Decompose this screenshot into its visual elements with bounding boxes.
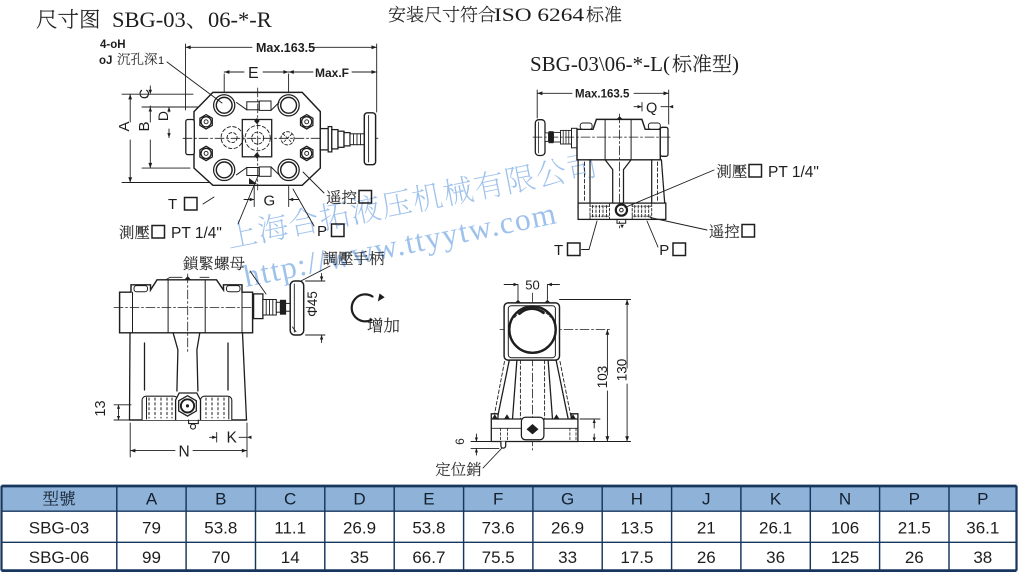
svg-text:50: 50 bbox=[525, 278, 539, 293]
svg-text:75.5: 75.5 bbox=[482, 548, 515, 567]
svg-text:SBG-03: SBG-03 bbox=[112, 7, 186, 32]
svg-text:G: G bbox=[561, 490, 574, 509]
svg-text:T: T bbox=[168, 196, 177, 213]
svg-text:14: 14 bbox=[281, 548, 300, 567]
svg-text:130: 130 bbox=[615, 359, 630, 382]
svg-text:N: N bbox=[179, 444, 190, 461]
svg-text:P: P bbox=[317, 223, 327, 240]
svg-text:D: D bbox=[155, 111, 171, 121]
svg-text:): ) bbox=[732, 52, 739, 76]
svg-text:125: 125 bbox=[831, 548, 859, 567]
svg-text:17.5: 17.5 bbox=[620, 548, 653, 567]
svg-text:P: P bbox=[977, 490, 988, 509]
svg-text:Max.F: Max.F bbox=[315, 66, 349, 80]
svg-text:70: 70 bbox=[211, 548, 230, 567]
svg-text:oJ: oJ bbox=[99, 55, 112, 67]
svg-text:E: E bbox=[423, 490, 434, 509]
svg-text:A: A bbox=[116, 121, 133, 131]
svg-text:G: G bbox=[264, 193, 276, 210]
svg-text:B: B bbox=[136, 121, 153, 131]
svg-text:Q: Q bbox=[646, 101, 657, 117]
svg-text:13.5: 13.5 bbox=[620, 519, 653, 538]
svg-text:26: 26 bbox=[905, 548, 924, 567]
svg-text:SBG-06: SBG-06 bbox=[29, 548, 89, 567]
svg-text:Max.163.5: Max.163.5 bbox=[256, 41, 315, 55]
svg-text:P: P bbox=[659, 242, 669, 259]
svg-text:http://www.ttyytw.com: http://www.ttyytw.com bbox=[240, 195, 560, 293]
svg-text:B: B bbox=[215, 490, 226, 509]
svg-text:PT 1/4": PT 1/4" bbox=[768, 164, 819, 181]
svg-text:K: K bbox=[227, 430, 238, 447]
svg-text:SBG-03\06-*-L(: SBG-03\06-*-L( bbox=[530, 52, 670, 76]
svg-text:26: 26 bbox=[697, 548, 716, 567]
svg-text:SBG-03: SBG-03 bbox=[29, 519, 89, 538]
svg-text:26.9: 26.9 bbox=[343, 519, 376, 538]
svg-text:106: 106 bbox=[831, 519, 859, 538]
svg-text:73.6: 73.6 bbox=[482, 519, 515, 538]
svg-text:E: E bbox=[248, 65, 259, 82]
svg-text:53.8: 53.8 bbox=[412, 519, 445, 538]
svg-text:1: 1 bbox=[158, 55, 164, 67]
svg-text:ISO 6264: ISO 6264 bbox=[494, 6, 584, 26]
svg-text:D: D bbox=[353, 490, 365, 509]
svg-text:N: N bbox=[839, 490, 851, 509]
svg-text:4-oH: 4-oH bbox=[100, 39, 126, 51]
svg-text:33: 33 bbox=[558, 548, 577, 567]
svg-text:PT 1/4": PT 1/4" bbox=[171, 225, 222, 242]
svg-text:C: C bbox=[284, 490, 296, 509]
svg-text:26.9: 26.9 bbox=[551, 519, 584, 538]
svg-text:79: 79 bbox=[142, 519, 161, 538]
svg-text:Φ45: Φ45 bbox=[305, 291, 320, 317]
svg-text:26.1: 26.1 bbox=[759, 519, 792, 538]
svg-text:36: 36 bbox=[766, 548, 785, 567]
svg-text:T: T bbox=[554, 242, 563, 259]
svg-text:36.1: 36.1 bbox=[966, 519, 999, 538]
svg-text:35: 35 bbox=[350, 548, 369, 567]
svg-text:F: F bbox=[493, 490, 503, 509]
svg-text:C: C bbox=[136, 89, 152, 99]
svg-text:K: K bbox=[770, 490, 782, 509]
svg-text:J: J bbox=[702, 490, 711, 509]
svg-text:P: P bbox=[909, 490, 920, 509]
svg-text:103: 103 bbox=[595, 366, 610, 389]
svg-text:99: 99 bbox=[142, 548, 161, 567]
svg-text:H: H bbox=[631, 490, 643, 509]
svg-text:13: 13 bbox=[93, 400, 109, 416]
svg-text:11.1: 11.1 bbox=[274, 519, 306, 538]
svg-text:66.7: 66.7 bbox=[412, 548, 445, 567]
svg-text:53.8: 53.8 bbox=[204, 519, 237, 538]
svg-text:21: 21 bbox=[697, 519, 716, 538]
svg-text:6: 6 bbox=[453, 438, 467, 445]
svg-text:21.5: 21.5 bbox=[898, 519, 931, 538]
svg-text:Max.163.5: Max.163.5 bbox=[575, 89, 630, 101]
svg-text:A: A bbox=[146, 490, 158, 509]
svg-text:06-*-R: 06-*-R bbox=[208, 7, 272, 32]
svg-text:38: 38 bbox=[973, 548, 992, 567]
